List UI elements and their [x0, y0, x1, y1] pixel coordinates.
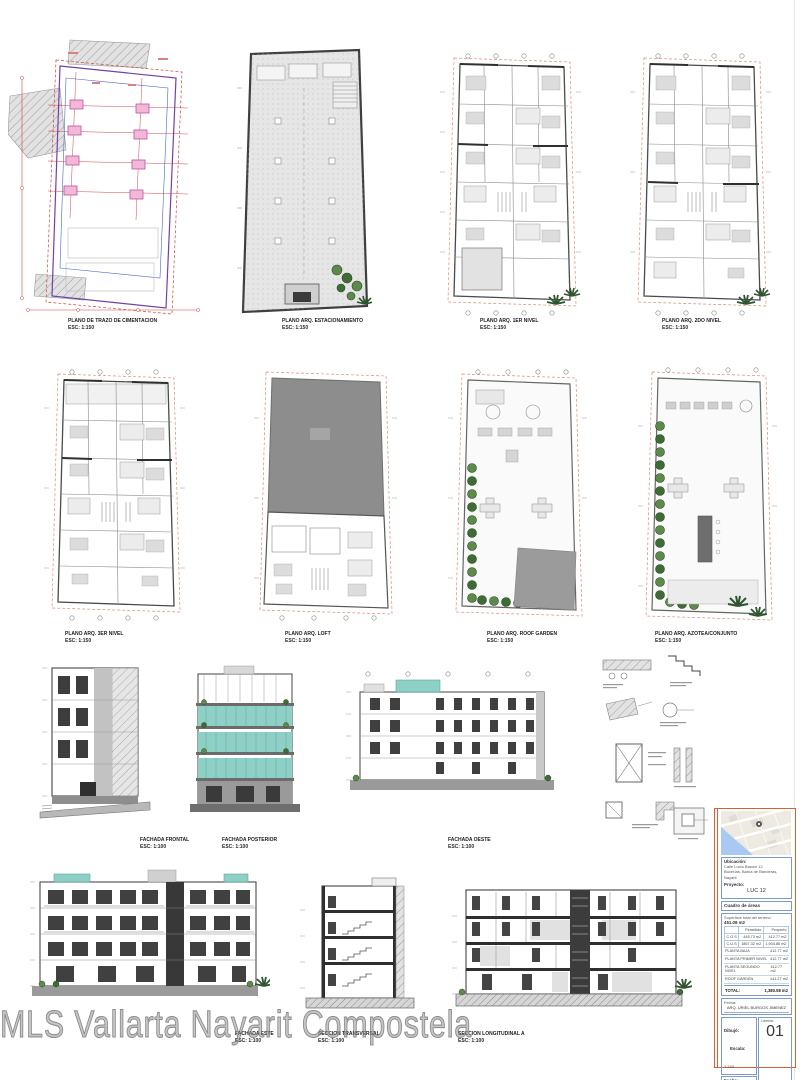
caption-cimentacion: PLANO DE TRAZO DE CIMENTACIONESC: 1:150 — [68, 318, 157, 331]
address-line2: Bucerías, Bahía de Banderas, Nayarit — [724, 869, 789, 880]
section-longitudinal — [452, 876, 692, 1024]
area-row: PLANTA PRIMER NIVEL412.77 m2 — [724, 956, 789, 964]
section-transversal — [298, 876, 422, 1018]
bar-counter — [698, 516, 712, 562]
caption-estacionamiento: PLANO ARQ. ESTACIONAMIENTOESC: 1:150 — [282, 318, 363, 331]
palm-tree-icon — [675, 979, 692, 988]
caption-nivel1: PLANO ARQ. 1ER NIVELESC: 1:150 — [480, 318, 538, 331]
table-row: C.O.S 445.73 m2 412.77 m2 — [725, 933, 789, 940]
cos-cus-table: Permitido Proyecto C.O.S 445.73 m2 412.7… — [724, 926, 789, 948]
caption-fachada-posterior: FACHADA POSTERIORESC: 1:100 — [222, 837, 277, 850]
caption-fachada-frontal: FACHADA FRONTALESC: 1:100 — [140, 837, 189, 850]
col-proyecto: Proyecto — [763, 926, 788, 933]
author-name: ARQ. URIEL BURGOS JIMENEZ — [724, 1005, 789, 1012]
elevation-posterior — [184, 660, 306, 825]
plan-estacionamiento — [237, 48, 372, 318]
total-row: TOTAL:1,380.58 m2 — [724, 985, 789, 994]
caption-nivel3: PLANO ARQ. 3ER NIVELESC: 1:150 — [65, 631, 123, 644]
title-block: Ubicación: Calle Lucio Blanco 12 Bucería… — [714, 808, 796, 1068]
caption-nivel2: PLANO ARQ. 2DO NIVELESC: 1:150 — [662, 318, 721, 331]
architectural-sheet: PLANO DE TRAZO DE CIMENTACIONESC: 1:150 … — [0, 0, 810, 1080]
caption-fachada-oeste: FACHADA OESTEESC: 1:100 — [448, 837, 491, 850]
elevation-oeste — [338, 666, 566, 821]
author-box: Fecha: ARQ. URIEL BURGOS JIMENEZ — [721, 998, 792, 1015]
superficie-value: 451.08 m2 — [724, 920, 789, 925]
location-map — [721, 811, 791, 855]
fecha-cell: Fecha: NOVIEMBRE 2021 — [721, 1076, 757, 1080]
plan-roofgarden — [448, 368, 588, 623]
table-row: C.U.S 1867.32 m2 1,904.86 m2 — [725, 940, 789, 947]
title-block-accent-rail — [717, 809, 718, 1067]
area-row: PLANTA BAJA412.77 m2 — [724, 948, 789, 956]
dibujo-escala-cell: Dibujó: Escala: 1:150 — [721, 1017, 757, 1075]
small-detail — [672, 806, 712, 846]
area-row: ROOF GARDEN141.27 m2 — [724, 976, 789, 984]
cuadro-areas-header: Cuadro de áreas — [721, 901, 792, 911]
plan-cimentacion — [8, 38, 223, 318]
caption-loft: PLANO ARQ. LOFTESC: 1:150 — [285, 631, 331, 644]
plan-azotea — [638, 366, 778, 628]
caption-roofgarden: PLANO ARQ. ROOF GARDENESC: 1:150 — [487, 631, 557, 644]
plan-nivel3 — [42, 368, 187, 623]
elevation-frontal — [34, 660, 156, 825]
signature-grid: Dibujó: Escala: 1:150 Fecha: NOVIEMBRE 2… — [721, 1017, 792, 1080]
caption-azotea: PLANO ARQ. AZOTEA/CONJUNTOESC: 1:150 — [655, 631, 737, 644]
watermark: MLS Vallarta Nayarit Compostela — [0, 1004, 472, 1047]
areas-box: Superficie total del terreno 451.08 m2 P… — [721, 913, 792, 996]
palm-tree-icon — [255, 977, 270, 986]
sheet-number: 01 — [761, 1024, 789, 1041]
proyecto-value: LUC 12 — [724, 887, 789, 896]
elevation-este — [28, 866, 270, 1018]
plan-nivel2 — [628, 52, 773, 317]
plan-loft — [252, 368, 397, 623]
col-permitido: Permitido — [739, 926, 763, 933]
sheet-number-cell: Lámina: 01 — [758, 1017, 792, 1080]
location-box: Ubicación: Calle Lucio Blanco 12 Bucería… — [721, 857, 792, 899]
pool — [462, 248, 502, 290]
plan-nivel1 — [438, 52, 583, 317]
area-row: PLANTA SEGUNDO NIVEL412.77 m2 — [724, 964, 789, 976]
